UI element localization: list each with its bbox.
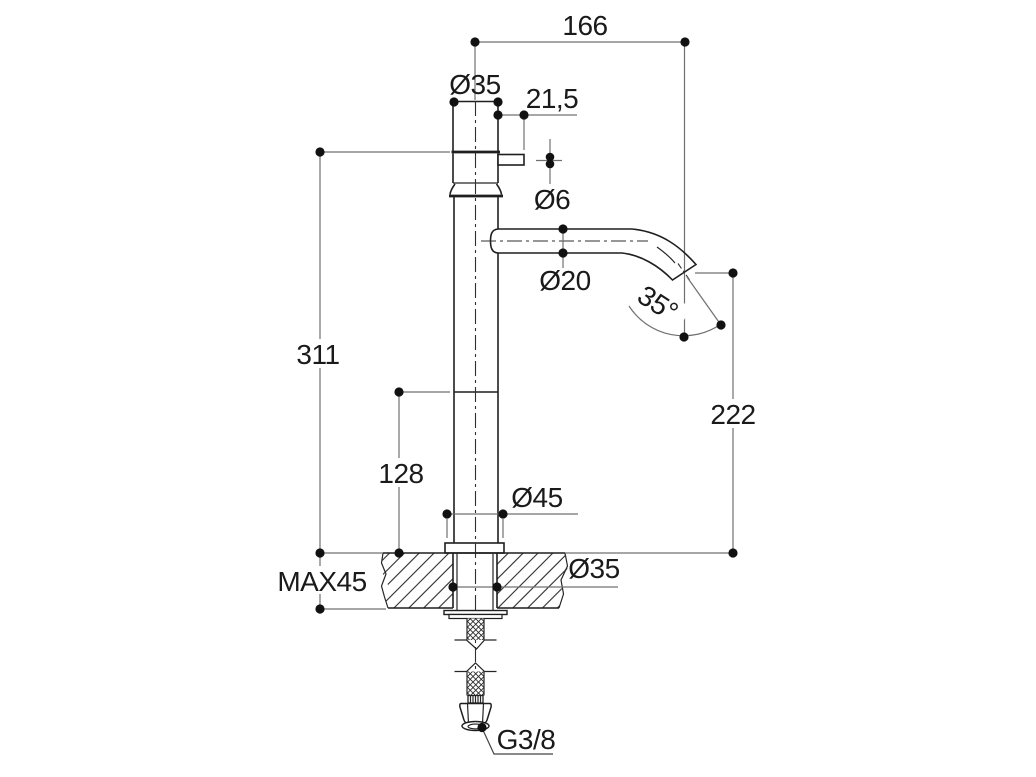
faucet-body-outline xyxy=(445,101,696,553)
dim-label-max-deck-thickness: MAX45 xyxy=(277,566,366,597)
counter-hatch-left xyxy=(382,553,454,608)
faucet-dimension-drawing: 166 Ø35 21,5 Ø6 Ø20 35° 311 222 128 Ø45 … xyxy=(0,0,1036,777)
dim-label-spout-tube-diameter: Ø20 xyxy=(539,265,590,296)
dim-label-supply-thread: G3/8 xyxy=(497,724,556,755)
hose-ferrule xyxy=(468,696,483,704)
dim-label-outlet-height: 222 xyxy=(710,399,755,430)
dim-label-base-diameter: Ø45 xyxy=(511,482,562,513)
drawing-page: 166 Ø35 21,5 Ø6 Ø20 35° 311 222 128 Ø45 … xyxy=(0,0,1036,777)
dim-label-column-height: 128 xyxy=(378,458,423,489)
dim-label-body-diameter: Ø35 xyxy=(449,69,500,100)
countertop-section xyxy=(382,553,568,611)
dimension-dots xyxy=(315,37,737,732)
dim-label-spout-reach: 166 xyxy=(562,10,607,41)
counter-hatch-right xyxy=(497,553,568,608)
dimension-lines xyxy=(320,42,733,754)
dim-label-total-height: 311 xyxy=(296,339,339,370)
mounting-washer-small xyxy=(449,615,502,619)
dim-label-handle-length: 21,5 xyxy=(526,83,579,114)
braided-hose-lower xyxy=(467,672,484,696)
dim-label-handle-stem-diameter: Ø6 xyxy=(534,184,570,215)
supply-assembly xyxy=(444,611,507,731)
base-flange xyxy=(445,543,504,553)
spout-bend-inner-line xyxy=(657,247,675,263)
braided-hose-upper xyxy=(467,619,484,641)
g38-connection-nut xyxy=(460,704,491,731)
spout-outline xyxy=(491,229,697,280)
handle-stub xyxy=(498,155,524,166)
dim-label-hole-diameter: Ø35 xyxy=(568,553,619,584)
